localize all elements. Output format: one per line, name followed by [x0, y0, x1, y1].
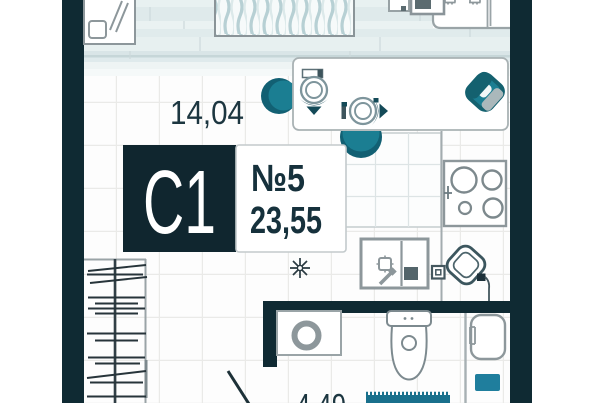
svg-text:4,49: 4,49: [296, 387, 346, 403]
svg-text:14,04: 14,04: [170, 94, 244, 131]
svg-text:№5: №5: [251, 158, 305, 200]
svg-text:С1: С1: [143, 153, 216, 253]
svg-text:23,55: 23,55: [250, 200, 322, 242]
